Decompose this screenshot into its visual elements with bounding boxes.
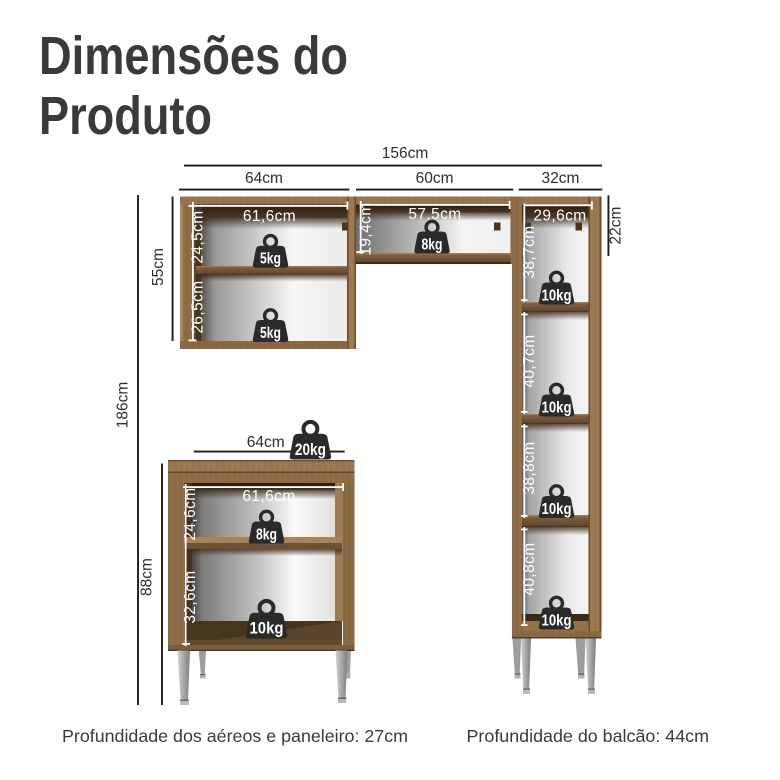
svg-text:32,6cm: 32,6cm: [182, 570, 199, 623]
svg-text:22cm: 22cm: [608, 207, 625, 245]
svg-text:88cm: 88cm: [139, 558, 156, 596]
svg-text:5kg: 5kg: [260, 325, 281, 342]
svg-text:19,4cm: 19,4cm: [358, 202, 375, 255]
svg-text:10kg: 10kg: [542, 612, 572, 629]
svg-text:38,7cm: 38,7cm: [521, 225, 538, 278]
svg-text:24,6cm: 24,6cm: [182, 487, 199, 540]
svg-text:40,7cm: 40,7cm: [521, 334, 538, 387]
svg-text:40,8cm: 40,8cm: [521, 542, 538, 595]
svg-text:60cm: 60cm: [416, 170, 454, 187]
svg-text:Profundidade dos aéreos e pane: Profundidade dos aéreos e paneleiro: 27c…: [62, 726, 408, 746]
svg-text:29,6cm: 29,6cm: [533, 208, 586, 225]
svg-text:26,5cm: 26,5cm: [189, 280, 206, 333]
svg-text:186cm: 186cm: [115, 382, 132, 429]
svg-text:5kg: 5kg: [260, 251, 281, 268]
svg-text:64cm: 64cm: [247, 434, 285, 451]
svg-text:32cm: 32cm: [542, 170, 580, 187]
svg-text:24,5cm: 24,5cm: [189, 210, 206, 263]
svg-text:10kg: 10kg: [542, 399, 572, 416]
svg-text:20kg: 20kg: [295, 440, 326, 459]
svg-text:10kg: 10kg: [542, 287, 572, 304]
svg-text:61,6cm: 61,6cm: [242, 488, 295, 505]
svg-text:Profundidade do balcão: 44cm: Profundidade do balcão: 44cm: [467, 726, 710, 746]
svg-text:61,6cm: 61,6cm: [243, 208, 296, 225]
svg-text:38,8cm: 38,8cm: [521, 441, 538, 494]
svg-text:8kg: 8kg: [422, 236, 443, 253]
svg-text:10kg: 10kg: [542, 501, 572, 518]
svg-text:64cm: 64cm: [245, 170, 283, 187]
svg-text:8kg: 8kg: [256, 526, 277, 543]
svg-text:55cm: 55cm: [150, 248, 167, 286]
svg-text:Produto: Produto: [39, 86, 212, 146]
svg-text:156cm: 156cm: [382, 145, 429, 162]
svg-text:Dimensões do: Dimensões do: [39, 26, 348, 86]
svg-text:10kg: 10kg: [250, 620, 284, 638]
